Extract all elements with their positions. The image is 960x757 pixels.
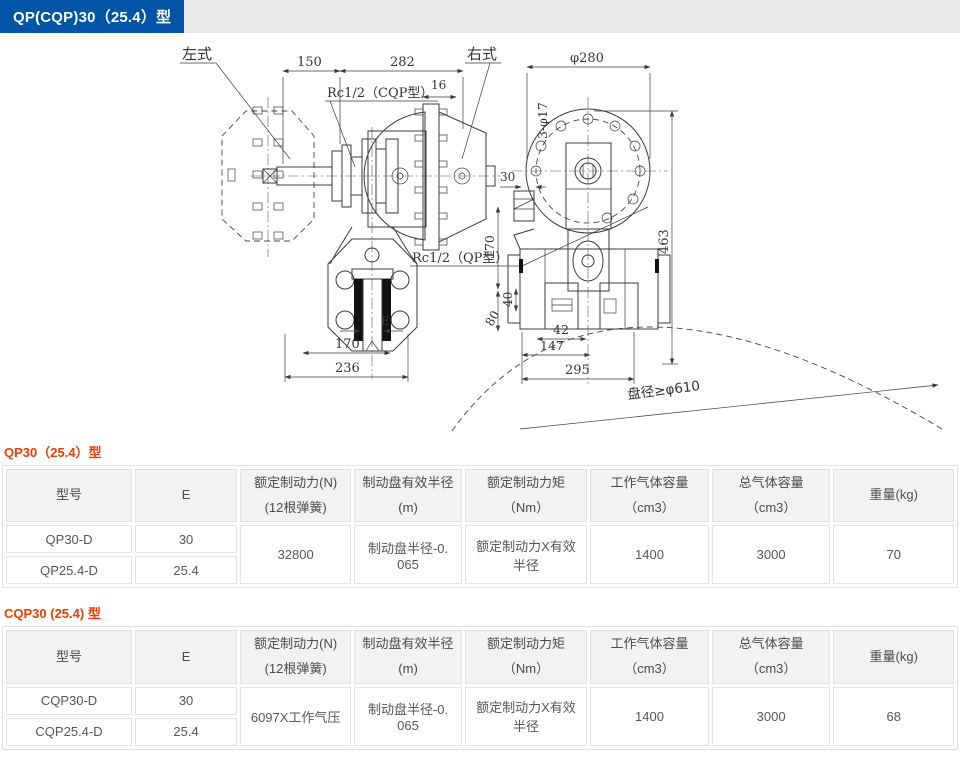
section-title-cqp30: CQP30 (25.4) 型 [0, 598, 960, 622]
col-model: 型号 [6, 630, 132, 683]
cell-model: QP30-D [6, 525, 132, 553]
left-view: 150 282 16 E 170 236 左式 右式 Rc1/2（CQP型） [180, 45, 648, 382]
holes-label: 3-φ17 [535, 102, 550, 139]
svg-text:E: E [381, 314, 390, 328]
cell-rated-torque: 额定制动力X有效半径 [465, 687, 587, 746]
table-header-row: 型号 E 额定制动力(N) (12根弹簧) 制动盘有效半径(m) 额定制动力矩（… [6, 469, 954, 522]
svg-text:282: 282 [390, 55, 415, 70]
col-total-volume: 总气体容量（cm3） [712, 630, 831, 683]
top-strip: QP(CQP)30（25.4）型 [0, 0, 960, 33]
cell-e: 30 [135, 525, 237, 553]
cell-weight: 70 [833, 525, 954, 584]
col-working-volume: 工作气体容量（cm3） [590, 630, 709, 683]
page-title-badge: QP(CQP)30（25.4）型 [0, 0, 184, 33]
cell-weight: 68 [833, 687, 954, 746]
svg-text:42: 42 [553, 322, 569, 337]
cell-model: CQP30-D [6, 687, 132, 715]
col-e: E [135, 630, 237, 683]
table-header-row: 型号 E 额定制动力(N) (12根弹簧) 制动盘有效半径(m) 额定制动力矩（… [6, 630, 954, 683]
col-rated-torque: 额定制动力矩（Nm） [465, 469, 587, 522]
cell-working-volume: 1400 [590, 687, 709, 746]
caliper [328, 227, 417, 351]
col-weight: 重量(kg) [833, 469, 954, 522]
right-type-label: 右式 [467, 45, 497, 63]
table-row: QP30-D 30 32800 制动盘半径-0. 065 额定制动力X有效半径 … [6, 525, 954, 553]
cell-disc-radius: 制动盘半径-0. 065 [354, 525, 462, 584]
svg-text:40: 40 [501, 292, 515, 307]
col-working-volume: 工作气体容量（cm3） [590, 469, 709, 522]
col-model: 型号 [6, 469, 132, 522]
brake-drawing-svg: 150 282 16 E 170 236 左式 右式 Rc1/2（CQP型） [0, 39, 960, 437]
cqp30-spec-table: 型号 E 额定制动力(N) (12根弹簧) 制动盘有效半径(m) 额定制动力矩（… [2, 626, 958, 749]
col-disc-radius: 制动盘有效半径(m) [354, 630, 462, 683]
col-disc-radius: 制动盘有效半径(m) [354, 469, 462, 522]
cell-working-volume: 1400 [590, 525, 709, 584]
svg-text:170: 170 [335, 337, 360, 352]
svg-text:170: 170 [482, 235, 497, 259]
svg-text:463: 463 [657, 229, 672, 254]
left-view-labels: 左式 右式 Rc1/2（CQP型） Rc1/2（QP型） [180, 45, 648, 266]
disc-diameter-note: 盘径≥φ610 [626, 377, 701, 403]
link-block [568, 229, 609, 291]
cell-total-volume: 3000 [712, 687, 831, 746]
col-rated-force: 额定制动力(N) (12根弹簧) [240, 630, 351, 683]
right-view-dimensions: φ280 3-φ17 30 463 170 40 80 42 147 [482, 51, 678, 384]
svg-text:236: 236 [335, 361, 360, 376]
cell-e: 30 [135, 687, 237, 715]
svg-text:80: 80 [482, 308, 502, 328]
cell-rated-force: 6097X工作气压 [240, 687, 351, 746]
cell-e: 25.4 [135, 718, 237, 746]
cell-model: CQP25.4-D [6, 718, 132, 746]
col-e: E [135, 469, 237, 522]
svg-text:295: 295 [565, 363, 590, 378]
technical-drawing: 150 282 16 E 170 236 左式 右式 Rc1/2（CQP型） [0, 39, 960, 437]
col-rated-force: 额定制动力(N) (12根弹簧) [240, 469, 351, 522]
cell-rated-force: 32800 [240, 525, 351, 584]
svg-text:150: 150 [297, 55, 322, 70]
section-title-qp30: QP30（25.4）型 [0, 437, 960, 461]
cell-rated-torque: 额定制动力X有效半径 [465, 525, 587, 584]
qp30-spec-table: 型号 E 额定制动力(N) (12根弹簧) 制动盘有效半径(m) 额定制动力矩（… [2, 465, 958, 588]
svg-text:30: 30 [500, 170, 515, 184]
actuator [364, 104, 495, 250]
col-total-volume: 总气体容量（cm3） [712, 469, 831, 522]
left-type-label: 左式 [182, 45, 212, 63]
cell-model: QP25.4-D [6, 556, 132, 584]
col-weight: 重量(kg) [833, 630, 954, 683]
svg-text:φ280: φ280 [570, 51, 604, 66]
cell-e: 25.4 [135, 556, 237, 584]
table-row: CQP30-D 30 6097X工作气压 制动盘半径-0. 065 额定制动力X… [6, 687, 954, 715]
cell-total-volume: 3000 [712, 525, 831, 584]
rc-cqp-label: Rc1/2（CQP型） [327, 86, 433, 101]
col-rated-torque: 额定制动力矩（Nm） [465, 630, 587, 683]
body-block [508, 191, 670, 329]
cell-disc-radius: 制动盘半径-0. 065 [354, 687, 462, 746]
right-view: φ280 3-φ17 30 463 170 40 80 42 147 [452, 51, 942, 431]
